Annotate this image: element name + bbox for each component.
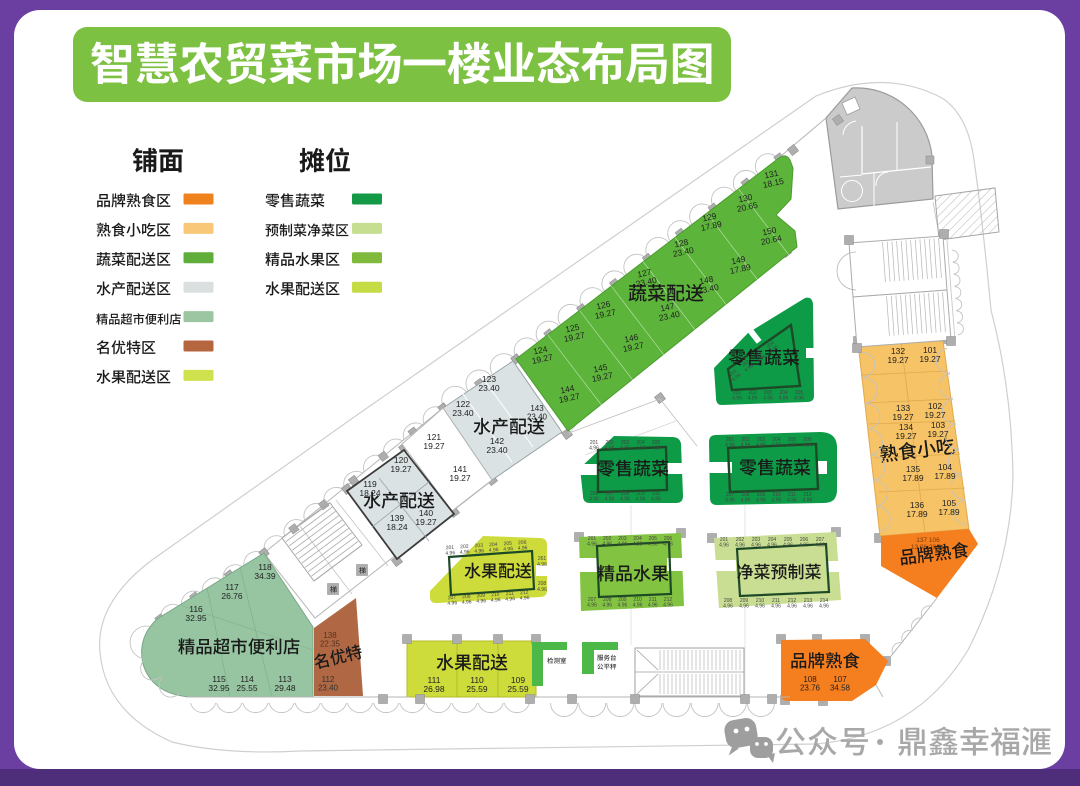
svg-text:137 106: 137 106	[916, 537, 940, 544]
svg-text:4.96: 4.96	[771, 604, 781, 610]
svg-text:4.96: 4.96	[739, 604, 749, 610]
svg-text:4.96: 4.96	[587, 542, 597, 548]
svg-text:32.95: 32.95	[185, 613, 207, 623]
svg-text:4.96: 4.96	[633, 542, 643, 548]
svg-text:4.96: 4.96	[751, 543, 761, 549]
svg-text:25.55: 25.55	[236, 683, 258, 693]
svg-text:4.96: 4.96	[803, 604, 813, 610]
svg-text:17.89: 17.89	[902, 473, 924, 483]
svg-text:4.96: 4.96	[589, 497, 599, 503]
svg-text:4.96: 4.96	[589, 446, 599, 452]
svg-text:18.24: 18.24	[359, 488, 381, 498]
svg-text:4.96: 4.96	[648, 542, 658, 548]
svg-text:34.39: 34.39	[254, 571, 276, 581]
svg-text:32.95: 32.95	[208, 683, 230, 693]
svg-text:4.96: 4.96	[803, 498, 813, 504]
svg-text:4.96: 4.96	[620, 497, 630, 503]
svg-text:18.24: 18.24	[386, 522, 408, 532]
svg-text:4.96: 4.96	[735, 543, 745, 549]
svg-text:4.96: 4.96	[447, 600, 457, 607]
svg-text:4.96: 4.96	[748, 396, 758, 402]
svg-text:4.96: 4.96	[537, 587, 547, 593]
svg-text:4.96: 4.96	[787, 443, 797, 449]
svg-text:4.96: 4.96	[633, 603, 643, 609]
svg-text:4.96: 4.96	[772, 498, 782, 504]
svg-text:19.27: 19.27	[423, 441, 445, 451]
svg-text:4.96: 4.96	[799, 543, 809, 549]
svg-text:19.27: 19.27	[390, 464, 412, 474]
svg-text:4.96: 4.96	[605, 446, 615, 452]
svg-text:4.96: 4.96	[755, 604, 765, 610]
svg-text:17.89: 17.89	[938, 507, 960, 517]
svg-text:4.96: 4.96	[719, 543, 729, 549]
svg-text:23.40: 23.40	[452, 408, 474, 418]
svg-text:19.27: 19.27	[892, 412, 914, 422]
svg-text:4.96: 4.96	[663, 603, 673, 609]
svg-text:4.96: 4.96	[819, 604, 829, 610]
svg-text:4.96: 4.96	[460, 549, 470, 556]
svg-text:17.89: 17.89	[906, 509, 928, 519]
svg-text:4.96: 4.96	[767, 543, 777, 549]
svg-text:4.96: 4.96	[605, 497, 615, 503]
svg-text:4.96: 4.96	[445, 550, 455, 557]
svg-text:4.96: 4.96	[779, 396, 789, 402]
svg-text:4.96: 4.96	[537, 562, 547, 568]
svg-text:4.96: 4.96	[602, 542, 612, 548]
svg-text:4.96: 4.96	[723, 604, 733, 610]
svg-text:4.96: 4.96	[520, 595, 530, 602]
svg-text:4.96: 4.96	[803, 443, 813, 449]
svg-text:23.40: 23.40	[527, 413, 548, 422]
svg-text:4.96: 4.96	[587, 603, 597, 609]
svg-text:19.27: 19.27	[927, 429, 949, 439]
svg-text:4.96: 4.96	[663, 542, 673, 548]
svg-text:22.35: 22.35	[320, 640, 341, 649]
svg-text:4.96: 4.96	[602, 603, 612, 609]
svg-text:4.96: 4.96	[648, 603, 658, 609]
svg-text:4.96: 4.96	[787, 498, 797, 504]
svg-text:4.96: 4.96	[772, 443, 782, 449]
svg-text:34.58: 34.58	[830, 684, 851, 693]
svg-text:4.96: 4.96	[618, 542, 628, 548]
svg-text:4.96: 4.96	[476, 598, 486, 605]
svg-text:25.59: 25.59	[507, 684, 529, 694]
svg-text:29.48: 29.48	[274, 683, 296, 693]
svg-text:4.96: 4.96	[620, 446, 630, 452]
svg-text:19.27: 19.27	[449, 473, 471, 483]
svg-text:4.96: 4.96	[787, 604, 797, 610]
svg-text:23.76: 23.76	[800, 684, 821, 693]
svg-text:26.76: 26.76	[221, 591, 243, 601]
svg-text:4.96: 4.96	[756, 443, 766, 449]
svg-text:4.96: 4.96	[756, 498, 766, 504]
svg-text:4.96: 4.96	[741, 443, 751, 449]
svg-text:26.98: 26.98	[423, 684, 445, 694]
svg-text:4.96: 4.96	[618, 603, 628, 609]
svg-text:4.96: 4.96	[474, 548, 484, 555]
svg-text:4.96: 4.96	[503, 546, 513, 553]
svg-text:4.96: 4.96	[732, 396, 742, 402]
svg-text:4.96: 4.96	[491, 597, 501, 604]
svg-text:23.40: 23.40	[318, 684, 339, 693]
svg-text:4.96: 4.96	[651, 446, 661, 452]
svg-text:4.96: 4.96	[518, 545, 528, 552]
svg-text:4.96: 4.96	[489, 547, 499, 554]
svg-text:4.96: 4.96	[725, 443, 735, 449]
svg-text:25.59: 25.59	[466, 684, 488, 694]
svg-text:19.27: 19.27	[415, 517, 437, 527]
svg-text:4.96: 4.96	[636, 497, 646, 503]
svg-text:17.89: 17.89	[934, 471, 956, 481]
svg-text:4.96: 4.96	[725, 498, 735, 504]
svg-text:4.96: 4.96	[794, 396, 804, 402]
svg-text:19.27: 19.27	[887, 355, 909, 365]
svg-text:4.96: 4.96	[741, 498, 751, 504]
svg-text:4.96: 4.96	[505, 596, 515, 603]
svg-text:4.96: 4.96	[763, 396, 773, 402]
svg-text:4.96: 4.96	[815, 543, 825, 549]
svg-text:4.96: 4.96	[651, 497, 661, 503]
svg-text:23.40: 23.40	[478, 383, 500, 393]
svg-text:19.27: 19.27	[919, 354, 941, 364]
svg-text:19.27: 19.27	[924, 410, 946, 420]
svg-text:23.40: 23.40	[486, 445, 508, 455]
svg-text:4.96: 4.96	[636, 446, 646, 452]
svg-text:4.96: 4.96	[783, 543, 793, 549]
svg-text:4.96: 4.96	[462, 599, 472, 606]
svg-text:19.27: 19.27	[895, 431, 917, 441]
